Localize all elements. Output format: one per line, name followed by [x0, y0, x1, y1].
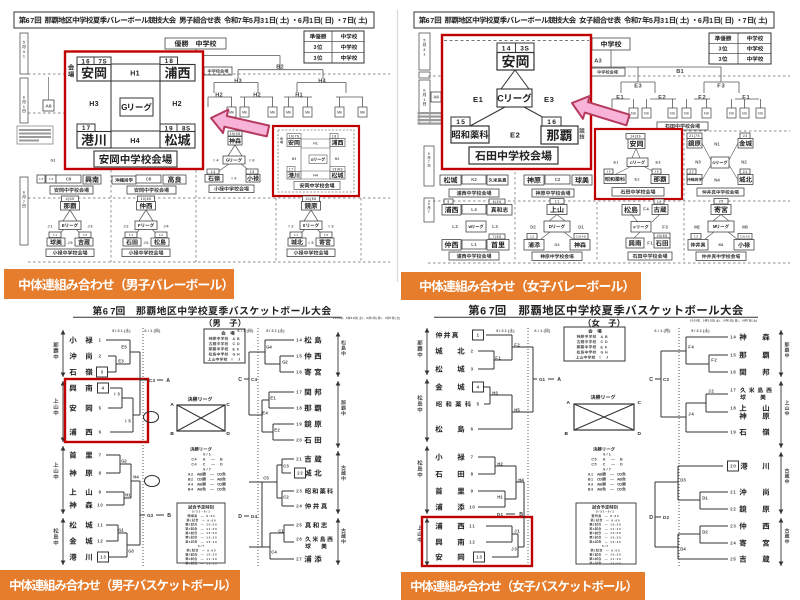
svg-text:6: 6: [428, 152, 430, 156]
svg-text:5: 5: [649, 17, 653, 25]
svg-text:C: C: [601, 340, 604, 344]
svg-text:H3: H3: [234, 78, 241, 84]
svg-text:I: I: [600, 356, 601, 360]
svg-text:C: C: [603, 463, 606, 467]
svg-text:F2: F2: [514, 343, 520, 348]
svg-text:I5: I5: [125, 419, 131, 424]
svg-text:H1: H1: [125, 493, 131, 498]
svg-text:N6: N6: [704, 112, 709, 116]
svg-text:CD: CD: [617, 473, 622, 477]
svg-text:20|8S: 20|8S: [657, 234, 668, 238]
svg-text:C5: C5: [263, 476, 269, 481]
svg-text:AB: AB: [597, 473, 602, 477]
svg-text:L1: L1: [471, 242, 477, 247]
svg-text:F4: F4: [688, 345, 694, 350]
svg-text:G4: G4: [266, 345, 272, 350]
svg-text:2025: 2025: [690, 319, 698, 323]
svg-text:18: 18: [332, 134, 336, 138]
svg-text:12: 12: [324, 233, 328, 237]
svg-text:C2: C2: [555, 177, 561, 182]
svg-text:2025: 2025: [333, 316, 341, 320]
svg-text:H2: H2: [172, 100, 181, 108]
svg-text:13: 13: [100, 555, 106, 560]
svg-text:12: 12: [469, 540, 475, 545]
svg-text:1: 1: [709, 17, 713, 25]
svg-text:(: (: [395, 316, 396, 320]
svg-text:B: B: [620, 458, 623, 462]
svg-text:I3: I3: [114, 392, 120, 397]
svg-text:(: (: [752, 319, 753, 323]
svg-text:10|6S: 10|6S: [141, 197, 152, 201]
svg-text:H1: H1: [295, 92, 302, 98]
svg-text:14|3S: 14|3S: [630, 135, 641, 139]
svg-text:12: 12: [159, 233, 163, 237]
svg-text:AB: AB: [617, 478, 622, 482]
svg-text:M6: M6: [360, 111, 365, 115]
svg-text:D: D: [620, 463, 623, 467]
svg-text:7: 7: [238, 17, 242, 25]
svg-text:AB: AB: [597, 483, 602, 487]
svg-text:6/1(: 6/1(: [144, 328, 155, 333]
svg-text:): ): [362, 316, 363, 320]
svg-text:C: C: [497, 94, 504, 104]
svg-text:D4: D4: [680, 547, 686, 552]
svg-text:16|7S: 16|7S: [289, 134, 300, 138]
svg-text:C4: C4: [271, 550, 277, 555]
svg-text:13: 13: [476, 555, 482, 560]
svg-text:D: D: [226, 431, 230, 437]
svg-text:23: 23: [743, 134, 747, 138]
svg-text:N6: N6: [742, 112, 747, 116]
svg-text:D2: D2: [530, 225, 536, 230]
svg-text:M6: M6: [242, 111, 247, 115]
svg-text:B: B: [167, 513, 171, 519]
svg-text:N1: N1: [714, 142, 720, 147]
svg-text:E3: E3: [634, 83, 641, 89]
svg-text:21: 21: [296, 457, 302, 462]
svg-text:6/7: 6/7: [603, 468, 611, 472]
svg-text:O: O: [712, 160, 715, 165]
svg-text:N6: N6: [631, 112, 636, 116]
svg-text:13: 13: [211, 170, 215, 174]
svg-text:): ): [756, 319, 757, 323]
svg-text:D: D: [605, 340, 608, 344]
svg-text:A: A: [203, 458, 206, 462]
svg-text:D: D: [237, 342, 240, 346]
svg-text:14: 14: [49, 177, 53, 181]
svg-text:M6: M6: [305, 111, 310, 115]
svg-text:—: —: [201, 561, 204, 565]
svg-text:3: 3: [719, 47, 722, 53]
svg-text:5/31: 5/31: [192, 510, 201, 514]
svg-text:M: M: [713, 224, 717, 229]
svg-text:H4: H4: [518, 478, 524, 483]
svg-text:B: B: [519, 512, 523, 518]
svg-text:(: (: [376, 316, 377, 320]
svg-text:A3: A3: [594, 58, 601, 64]
svg-text:H5: H5: [514, 408, 520, 413]
svg-text:CD: CD: [217, 488, 222, 492]
svg-text:I: I: [232, 358, 233, 362]
svg-text:J: J: [606, 356, 608, 360]
svg-text:W: W: [468, 224, 472, 229]
svg-text:A: A: [166, 378, 170, 384]
svg-text:21|8S: 21|8S: [306, 197, 317, 201]
svg-text:E4: E4: [262, 411, 268, 416]
svg-text:B: B: [220, 458, 223, 462]
svg-text:N3: N3: [695, 160, 701, 165]
svg-text:25: 25: [719, 200, 723, 204]
svg-text:(: (: [357, 316, 358, 320]
svg-text:E3: E3: [544, 95, 554, 104]
svg-text:13:00: 13:00: [206, 561, 217, 565]
svg-text:H2: H2: [215, 92, 222, 98]
svg-text:AB: AB: [217, 478, 222, 482]
svg-text:A2: A2: [188, 473, 193, 477]
svg-text:CD: CD: [597, 478, 602, 482]
svg-text:A3: A3: [588, 483, 593, 487]
svg-text:CD: CD: [197, 478, 202, 482]
svg-text:67: 67: [26, 17, 35, 25]
svg-text:D4: D4: [251, 514, 257, 519]
svg-text:E3: E3: [118, 359, 124, 364]
svg-text:25: 25: [730, 557, 736, 562]
svg-text:F1: F1: [495, 356, 501, 361]
svg-text:C: C: [638, 400, 642, 406]
svg-text:13|4S: 13|4S: [740, 235, 750, 239]
svg-text:13|4S: 13|4S: [576, 235, 586, 239]
svg-text:N6: N6: [644, 112, 649, 116]
svg-text:15: 15: [730, 353, 736, 358]
svg-text:D1: D1: [702, 496, 708, 501]
svg-text:J5: J5: [68, 241, 73, 245]
svg-text:19|8S: 19|8S: [332, 167, 343, 171]
svg-text:22: 22: [297, 471, 303, 476]
svg-text:J3: J3: [511, 547, 517, 552]
svg-text:): ): [738, 319, 739, 323]
svg-text:G3: G3: [128, 549, 134, 554]
svg-text:—: —: [605, 561, 608, 565]
svg-text:AB: AB: [197, 483, 202, 487]
svg-text:B1: B1: [676, 69, 683, 75]
svg-text:M2: M2: [694, 225, 700, 230]
svg-text:B: B: [565, 431, 569, 437]
svg-text:D: D: [238, 514, 242, 520]
svg-text:J3: J3: [88, 225, 93, 229]
svg-text:4|SS: 4|SS: [66, 197, 74, 201]
svg-text:11: 11: [555, 200, 559, 204]
svg-text:M3: M3: [742, 225, 748, 230]
svg-text:E1: E1: [473, 95, 484, 104]
svg-text:19: 19: [730, 430, 736, 435]
svg-text:F: F: [138, 223, 141, 228]
svg-text:A6: A6: [433, 95, 439, 100]
svg-text:C5: C5: [591, 458, 596, 462]
svg-text:J1: J1: [514, 529, 520, 534]
svg-text:G1: G1: [51, 159, 56, 163]
svg-text:—: —: [210, 473, 214, 477]
svg-text:3: 3: [314, 56, 317, 62]
svg-text:D3: D3: [680, 478, 686, 483]
svg-text:E2: E2: [274, 428, 280, 433]
svg-text:6|5S: 6|5S: [493, 200, 501, 204]
svg-text:B2: B2: [276, 64, 283, 70]
svg-text:C: C: [226, 402, 230, 408]
svg-text:18: 18: [296, 406, 302, 411]
svg-text:I6: I6: [232, 177, 237, 181]
svg-text:31: 31: [660, 17, 669, 25]
svg-text:CD: CD: [617, 488, 622, 492]
svg-text:6/1(: 6/1(: [654, 328, 665, 333]
svg-text:M1: M1: [719, 243, 724, 247]
svg-text:C9: C9: [66, 177, 72, 182]
svg-text:I6: I6: [250, 159, 255, 163]
svg-text:13:00: 13:00: [610, 561, 621, 565]
svg-text:G: G: [121, 103, 127, 112]
svg-text:J4: J4: [164, 225, 170, 229]
svg-text:12: 12: [694, 235, 698, 239]
svg-text:7: 7: [428, 210, 430, 214]
svg-text:11: 11: [294, 233, 298, 237]
svg-text:CD: CD: [217, 473, 222, 477]
svg-text:N6: N6: [670, 112, 675, 116]
svg-text:N4: N4: [714, 178, 720, 183]
svg-text:6/1(: 6/1(: [534, 328, 545, 333]
svg-text:—: —: [210, 478, 214, 482]
svg-text:5/31(: 5/31(: [496, 328, 510, 333]
svg-text:—: —: [610, 473, 614, 477]
svg-text:6: 6: [298, 17, 302, 25]
svg-text:L4: L4: [471, 207, 477, 212]
svg-text:G3: G3: [147, 513, 153, 518]
svg-text:12: 12: [530, 235, 534, 239]
svg-text:19: 19: [657, 200, 661, 204]
svg-text:J2: J2: [124, 225, 129, 229]
svg-text:H: H: [605, 351, 608, 355]
svg-text:21: 21: [730, 490, 736, 495]
svg-text:N6: N6: [758, 112, 763, 116]
svg-text:15: 15: [456, 119, 465, 126]
svg-text:I5: I5: [309, 241, 314, 245]
svg-text:G1: G1: [539, 377, 545, 382]
svg-text:15: 15: [296, 354, 302, 359]
svg-text:F2: F2: [711, 358, 717, 363]
svg-text:H1: H1: [130, 69, 139, 77]
svg-text:14: 14: [296, 338, 302, 343]
svg-text:C4: C4: [251, 377, 257, 382]
svg-text:A: A: [233, 337, 236, 341]
svg-text:6: 6: [428, 202, 430, 206]
svg-text:CD: CD: [617, 483, 622, 487]
svg-text:18: 18: [730, 406, 736, 411]
svg-text:A: A: [567, 400, 571, 406]
svg-text:B: B: [605, 335, 608, 339]
svg-text:A: A: [557, 377, 561, 383]
svg-text:G2: G2: [121, 459, 127, 464]
svg-text:): ): [381, 316, 382, 320]
svg-text:F1: F1: [742, 95, 749, 101]
svg-text:H3: H3: [292, 157, 297, 161]
svg-text:J1: J1: [48, 225, 53, 229]
svg-text:31: 31: [351, 316, 355, 320]
svg-text:(: (: [714, 319, 715, 323]
svg-text:A1: A1: [588, 473, 593, 477]
svg-text:N6: N6: [729, 112, 734, 116]
svg-text:H1: H1: [497, 495, 503, 500]
svg-text:—: —: [211, 463, 215, 467]
svg-text:A: A: [603, 458, 606, 462]
svg-text:15: 15: [250, 170, 254, 174]
svg-text:11: 11: [129, 233, 133, 237]
svg-text:H3: H3: [492, 391, 498, 396]
svg-text:D2: D2: [702, 530, 708, 535]
svg-text:F4: F4: [643, 207, 649, 212]
svg-text:H4: H4: [313, 173, 318, 177]
svg-text:E2: E2: [658, 95, 665, 101]
svg-text:23: 23: [730, 524, 736, 529]
svg-text:H4: H4: [133, 475, 139, 480]
svg-text:24: 24: [296, 504, 302, 509]
svg-text:H2: H2: [335, 157, 340, 161]
svg-text:10: 10: [469, 505, 475, 510]
svg-text:7: 7: [343, 17, 347, 25]
svg-text:E1: E1: [616, 95, 623, 101]
svg-text:14: 14: [502, 46, 511, 53]
svg-text:16: 16: [547, 119, 556, 126]
svg-text:5/31(: 5/31(: [691, 328, 705, 333]
svg-text:13: 13: [39, 177, 43, 181]
svg-text:—: —: [211, 458, 215, 462]
svg-text:19|3S: 19|3S: [230, 132, 241, 136]
svg-text:D: D: [549, 224, 552, 229]
svg-text:C: C: [203, 463, 206, 467]
svg-text:—: —: [611, 463, 615, 467]
svg-text:—: —: [610, 483, 614, 487]
svg-text:F3: F3: [717, 83, 724, 89]
svg-text:23: 23: [296, 489, 302, 494]
svg-text:15:40: 15:40: [610, 540, 621, 544]
svg-text:J4: J4: [688, 412, 694, 417]
svg-text:6/7: 6/7: [203, 468, 211, 472]
svg-text:F3: F3: [662, 225, 668, 230]
svg-text:—: —: [210, 488, 214, 492]
svg-text:K2: K2: [471, 177, 477, 182]
svg-text:M6: M6: [270, 111, 275, 115]
svg-text:J6: J6: [144, 241, 149, 245]
svg-text:7: 7: [638, 17, 642, 25]
svg-text:C3: C3: [149, 378, 155, 383]
svg-text:E2: E2: [510, 131, 520, 140]
svg-text:6/1: 6/1: [603, 453, 611, 457]
svg-text:6: 6: [698, 17, 702, 25]
svg-text:I4: I4: [214, 159, 220, 163]
svg-text:H2: H2: [253, 92, 260, 98]
svg-text:27: 27: [689, 170, 693, 174]
svg-text:5: 5: [249, 17, 253, 25]
svg-text:C2: C2: [663, 377, 669, 382]
svg-text:B: B: [170, 431, 174, 437]
svg-text:3: 3: [719, 57, 722, 63]
svg-text:C: C: [649, 377, 653, 383]
svg-text:F2: F2: [698, 95, 705, 101]
svg-text:A: A: [170, 402, 174, 408]
svg-text:—: —: [610, 478, 614, 482]
svg-text:22: 22: [730, 507, 736, 512]
svg-text:6/1: 6/1: [203, 453, 211, 457]
svg-text:E: E: [62, 223, 65, 228]
svg-text:11: 11: [97, 523, 103, 528]
svg-text:67: 67: [426, 17, 435, 25]
svg-text:A6: A6: [45, 103, 52, 109]
svg-text:E1: E1: [270, 396, 276, 401]
svg-text:D1: D1: [497, 512, 503, 517]
svg-text:G2: G2: [282, 360, 288, 365]
svg-text:C5: C5: [591, 463, 596, 467]
svg-text:B2: B2: [188, 478, 193, 482]
svg-text:7: 7: [743, 17, 747, 25]
svg-text:C8: C8: [146, 177, 152, 182]
svg-text:M6: M6: [229, 111, 234, 115]
svg-text:—: —: [610, 488, 614, 492]
svg-text:B3: B3: [588, 488, 593, 492]
svg-text:C: C: [238, 377, 242, 383]
svg-text:G: G: [601, 351, 604, 355]
svg-text:11: 11: [469, 524, 475, 529]
svg-text:25: 25: [296, 523, 302, 528]
svg-text:(: (: [733, 319, 734, 323]
svg-text:1: 1: [309, 17, 313, 25]
svg-text:F1: F1: [647, 241, 653, 246]
svg-text:16: 16: [296, 370, 302, 375]
svg-text:): ): [399, 316, 400, 320]
svg-text:M6: M6: [286, 111, 291, 115]
svg-text:17: 17: [730, 388, 736, 393]
svg-text:31: 31: [260, 17, 269, 25]
svg-text:B1: B1: [588, 478, 593, 482]
svg-text:H2: H2: [497, 462, 503, 467]
svg-text:D2: D2: [663, 515, 669, 520]
svg-text:D: D: [220, 463, 223, 467]
svg-text:L2: L2: [452, 224, 458, 229]
svg-text:CD: CD: [217, 483, 222, 487]
svg-text:C3: C3: [283, 464, 289, 469]
svg-text:17: 17: [289, 167, 293, 171]
svg-text:15:40: 15:40: [206, 540, 217, 544]
svg-text:D: D: [649, 515, 653, 521]
svg-text:C: C: [233, 342, 236, 346]
svg-text:M6: M6: [337, 111, 342, 115]
svg-text:H: H: [237, 353, 240, 357]
svg-text:26: 26: [296, 537, 302, 542]
svg-text:27: 27: [296, 557, 302, 562]
svg-text:N2: N2: [741, 160, 747, 165]
svg-text:16: 16: [655, 170, 659, 174]
svg-text:D1: D1: [578, 225, 584, 230]
svg-text:E2: E2: [635, 178, 640, 182]
svg-text:I3: I3: [329, 225, 334, 229]
svg-text:I2: I2: [289, 225, 294, 229]
svg-text:H4: H4: [130, 137, 139, 145]
svg-text:C2: C2: [283, 495, 289, 500]
svg-text:11: 11: [53, 233, 57, 237]
svg-text:G1: G1: [118, 528, 124, 533]
svg-text:5/31: 5/31: [596, 510, 605, 514]
svg-text:L3: L3: [492, 224, 498, 229]
svg-text:C1: C1: [278, 529, 284, 534]
svg-text:5/31(: 5/31(: [266, 328, 280, 333]
svg-text:16: 16: [730, 370, 736, 375]
svg-text:H1: H1: [313, 141, 318, 145]
